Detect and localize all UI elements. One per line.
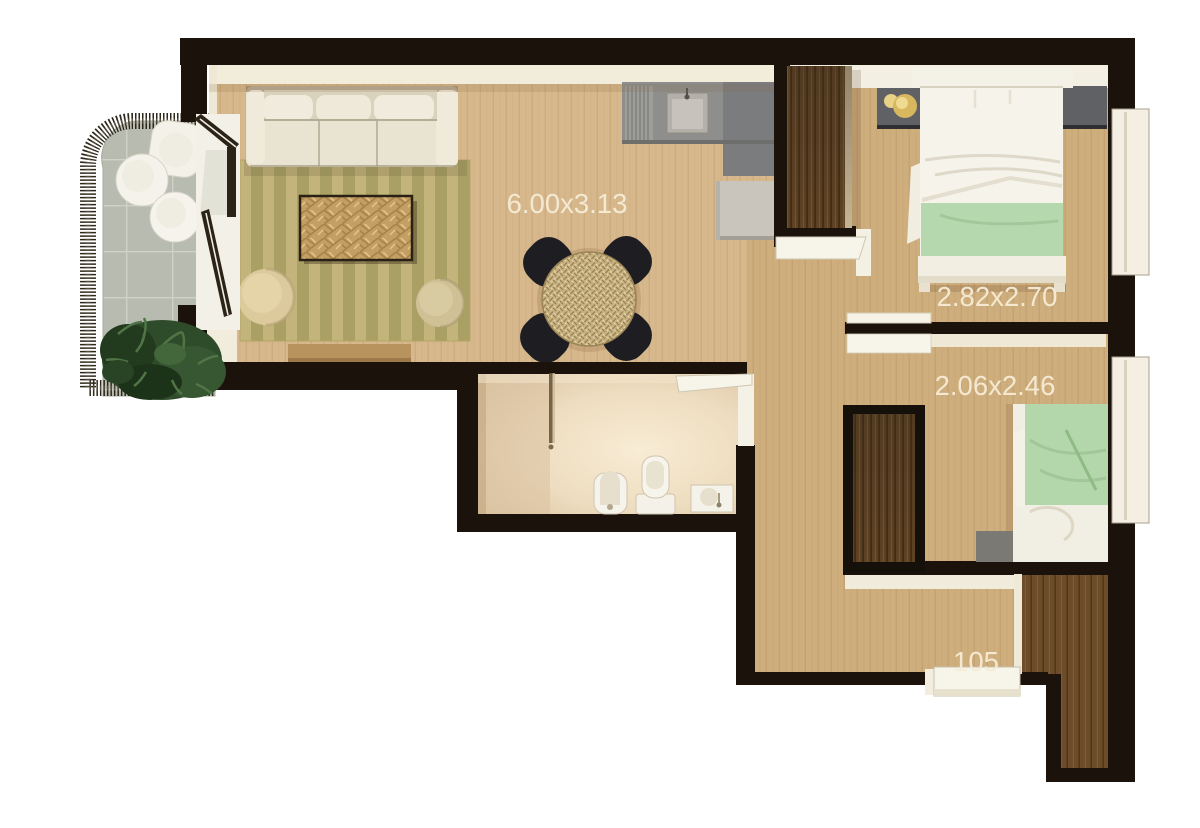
- svg-text:2.82x2.70: 2.82x2.70: [937, 281, 1058, 312]
- svg-text:6.00x3.13: 6.00x3.13: [507, 188, 628, 219]
- svg-text:105: 105: [953, 646, 999, 677]
- svg-text:2.06x2.46: 2.06x2.46: [935, 370, 1056, 401]
